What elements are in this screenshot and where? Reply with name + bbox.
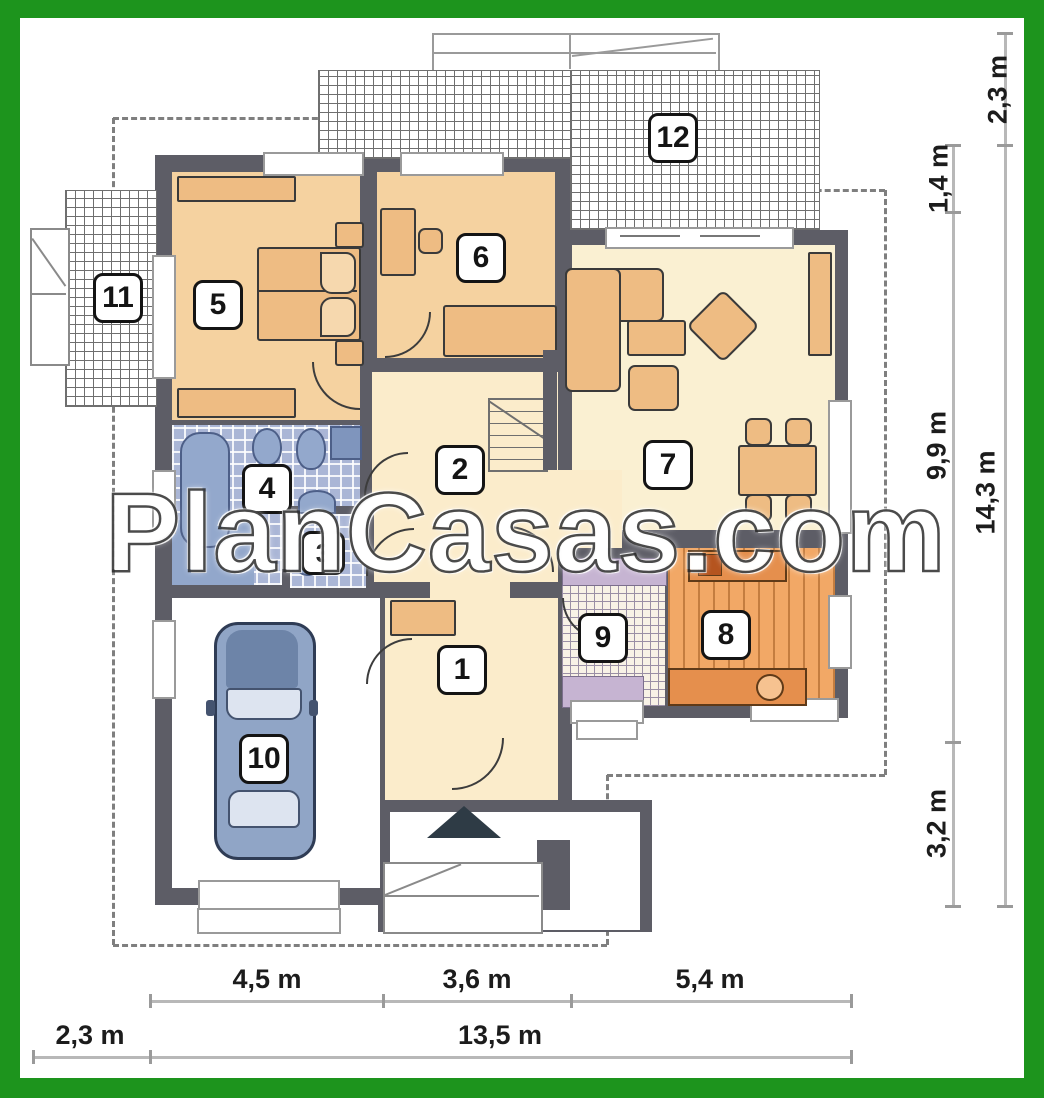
terrace-steps <box>30 228 70 366</box>
entrance-steps-line <box>385 895 539 897</box>
room-number-8: 8 <box>718 618 735 652</box>
entrance-steps <box>383 862 543 934</box>
window-living-sash-line <box>620 235 680 237</box>
terrace-grid-top-left <box>318 70 572 159</box>
dimension-right-9-9: 9,9 m <box>922 396 953 496</box>
dimension-bottom-4-5: 4,5 m <box>217 964 317 995</box>
dimension-line-right-outer <box>1004 33 1007 908</box>
room-label-1: 1 <box>437 645 487 695</box>
room-label-9: 9 <box>578 613 628 663</box>
tick <box>997 32 1013 35</box>
terrace-steps-line <box>32 293 66 295</box>
desk-room6 <box>380 208 416 276</box>
opening-hall-living <box>552 470 622 548</box>
tick <box>997 144 1013 147</box>
dimension-line-bottom-inner <box>150 1000 852 1003</box>
sideboard-hall <box>390 600 456 636</box>
bathtub <box>180 432 230 548</box>
dimension-line-bottom-outer <box>33 1056 851 1059</box>
room-number-12: 12 <box>656 121 689 155</box>
bidet <box>298 490 336 514</box>
dining-chair-3 <box>745 494 772 522</box>
stove <box>698 554 722 576</box>
garage-apron <box>197 908 341 934</box>
tick <box>149 994 152 1008</box>
room-number-3: 3 <box>316 538 330 569</box>
room-label-2: 2 <box>435 445 485 495</box>
room-number-2: 2 <box>452 453 469 487</box>
dining-table <box>738 445 817 496</box>
room-label-10: 10 <box>239 734 289 784</box>
tick <box>850 994 853 1008</box>
armchair <box>628 365 679 411</box>
dining-chair-4 <box>785 494 812 522</box>
wardrobe-room5-bottom <box>177 388 296 418</box>
window-bathroom-left <box>152 470 176 534</box>
window-room6-top <box>400 152 504 176</box>
window-living-sash-line2 <box>700 235 760 237</box>
dimension-right-3-2: 3,2 m <box>922 774 953 874</box>
tick <box>149 1050 152 1064</box>
tick <box>32 1050 35 1064</box>
tick <box>945 741 961 744</box>
room-number-9: 9 <box>595 621 612 655</box>
dimension-right-1-4: 1,4 m <box>924 129 955 229</box>
tick <box>570 994 573 1008</box>
chimney-divider-vertical <box>569 35 571 69</box>
kitchen-sink <box>756 674 784 701</box>
car-rear-window <box>228 790 300 828</box>
room-label-7: 7 <box>643 440 693 490</box>
window-garage-left <box>152 620 176 699</box>
roof-outline-bottom-right <box>607 774 885 777</box>
room-label-3: 3 <box>301 531 345 575</box>
room-9-counter-top <box>562 558 667 586</box>
room-label-4: 4 <box>242 464 292 514</box>
window-living-terrace-door <box>605 227 794 249</box>
shower <box>330 426 362 460</box>
window-living-right <box>828 400 852 534</box>
kitchen-counter-bottom <box>668 668 807 706</box>
stair-wall-stub <box>543 350 557 470</box>
room-number-10: 10 <box>247 742 280 776</box>
bed-pillow-bottom <box>320 297 356 337</box>
dining-chair-2 <box>785 418 812 446</box>
room-number-7: 7 <box>660 448 677 482</box>
dimension-bottom-2-3: 2,3 m <box>40 1020 140 1051</box>
room-number-5: 5 <box>210 288 227 322</box>
tick <box>850 1050 853 1064</box>
room-number-1: 1 <box>454 653 471 687</box>
entrance-arrow <box>427 806 501 838</box>
bed-room6 <box>443 305 557 357</box>
nightstand-top <box>335 222 364 248</box>
room-number-11: 11 <box>102 281 134 315</box>
window-room5-top <box>263 152 364 176</box>
desk-chair-room6 <box>418 228 443 254</box>
roof-outline-top-left <box>113 117 345 120</box>
window-room5-terrace-door <box>152 255 176 379</box>
dimension-bottom-13-5: 13,5 m <box>450 1020 550 1051</box>
dimension-bottom-5-4: 5,4 m <box>660 964 760 995</box>
tick <box>997 905 1013 908</box>
roof-outline-bottom <box>113 944 607 947</box>
sink-1 <box>252 428 282 466</box>
dimension-right-14-3: 14,3 m <box>971 443 1002 543</box>
shelf-unit <box>808 252 832 356</box>
room-label-8: 8 <box>701 610 751 660</box>
sink-2 <box>296 428 326 470</box>
tick <box>382 994 385 1008</box>
floor-plan-image: 1 2 3 4 5 6 7 8 9 10 11 12 PlanCasas.com… <box>0 0 1044 1098</box>
bed-pillow-top <box>320 252 356 294</box>
room-label-11: 11 <box>93 273 143 323</box>
back-door-step <box>576 720 638 740</box>
room-label-12: 12 <box>648 113 698 163</box>
coffee-table <box>627 320 686 356</box>
sofa-corner-side <box>565 268 621 392</box>
room-number-4: 4 <box>259 472 276 506</box>
room-number-6: 6 <box>473 241 490 275</box>
roof-outline-right <box>884 190 887 775</box>
dimension-bottom-3-6: 3,6 m <box>427 964 527 995</box>
opening-hall2-hall1 <box>430 580 510 602</box>
car-windshield <box>226 688 302 720</box>
dining-chair-1 <box>745 418 772 446</box>
car-mirror-right <box>309 700 318 716</box>
room-label-5: 5 <box>193 280 243 330</box>
dimension-right-2-3: 2,3 m <box>983 40 1014 140</box>
room-label-6: 6 <box>456 233 506 283</box>
wardrobe-room5-top <box>177 176 296 202</box>
tick <box>945 905 961 908</box>
car-mirror-left <box>206 700 215 716</box>
car-hood <box>226 630 298 688</box>
window-kitchen-right <box>828 595 852 669</box>
